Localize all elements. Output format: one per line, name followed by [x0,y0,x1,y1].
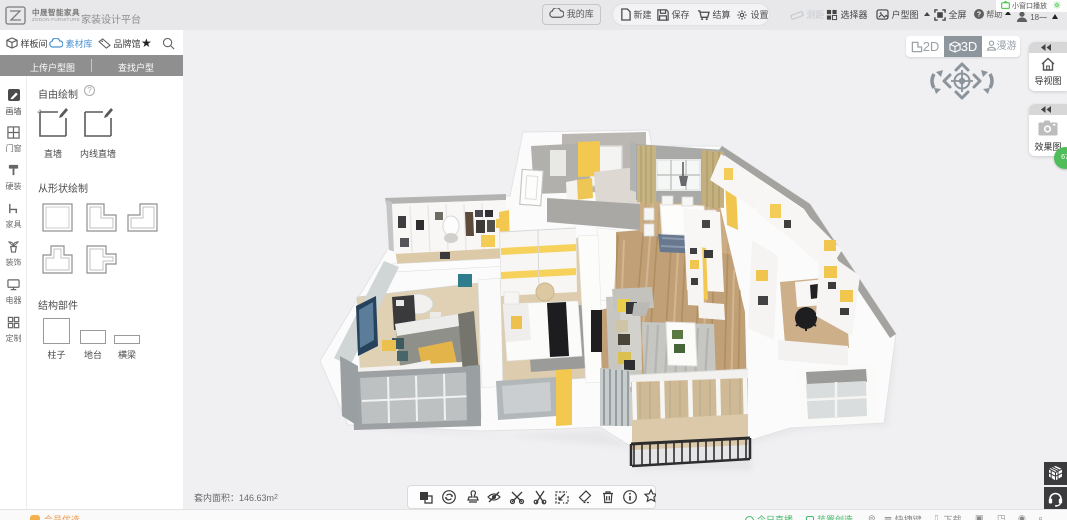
svg-text:?: ? [977,11,981,18]
